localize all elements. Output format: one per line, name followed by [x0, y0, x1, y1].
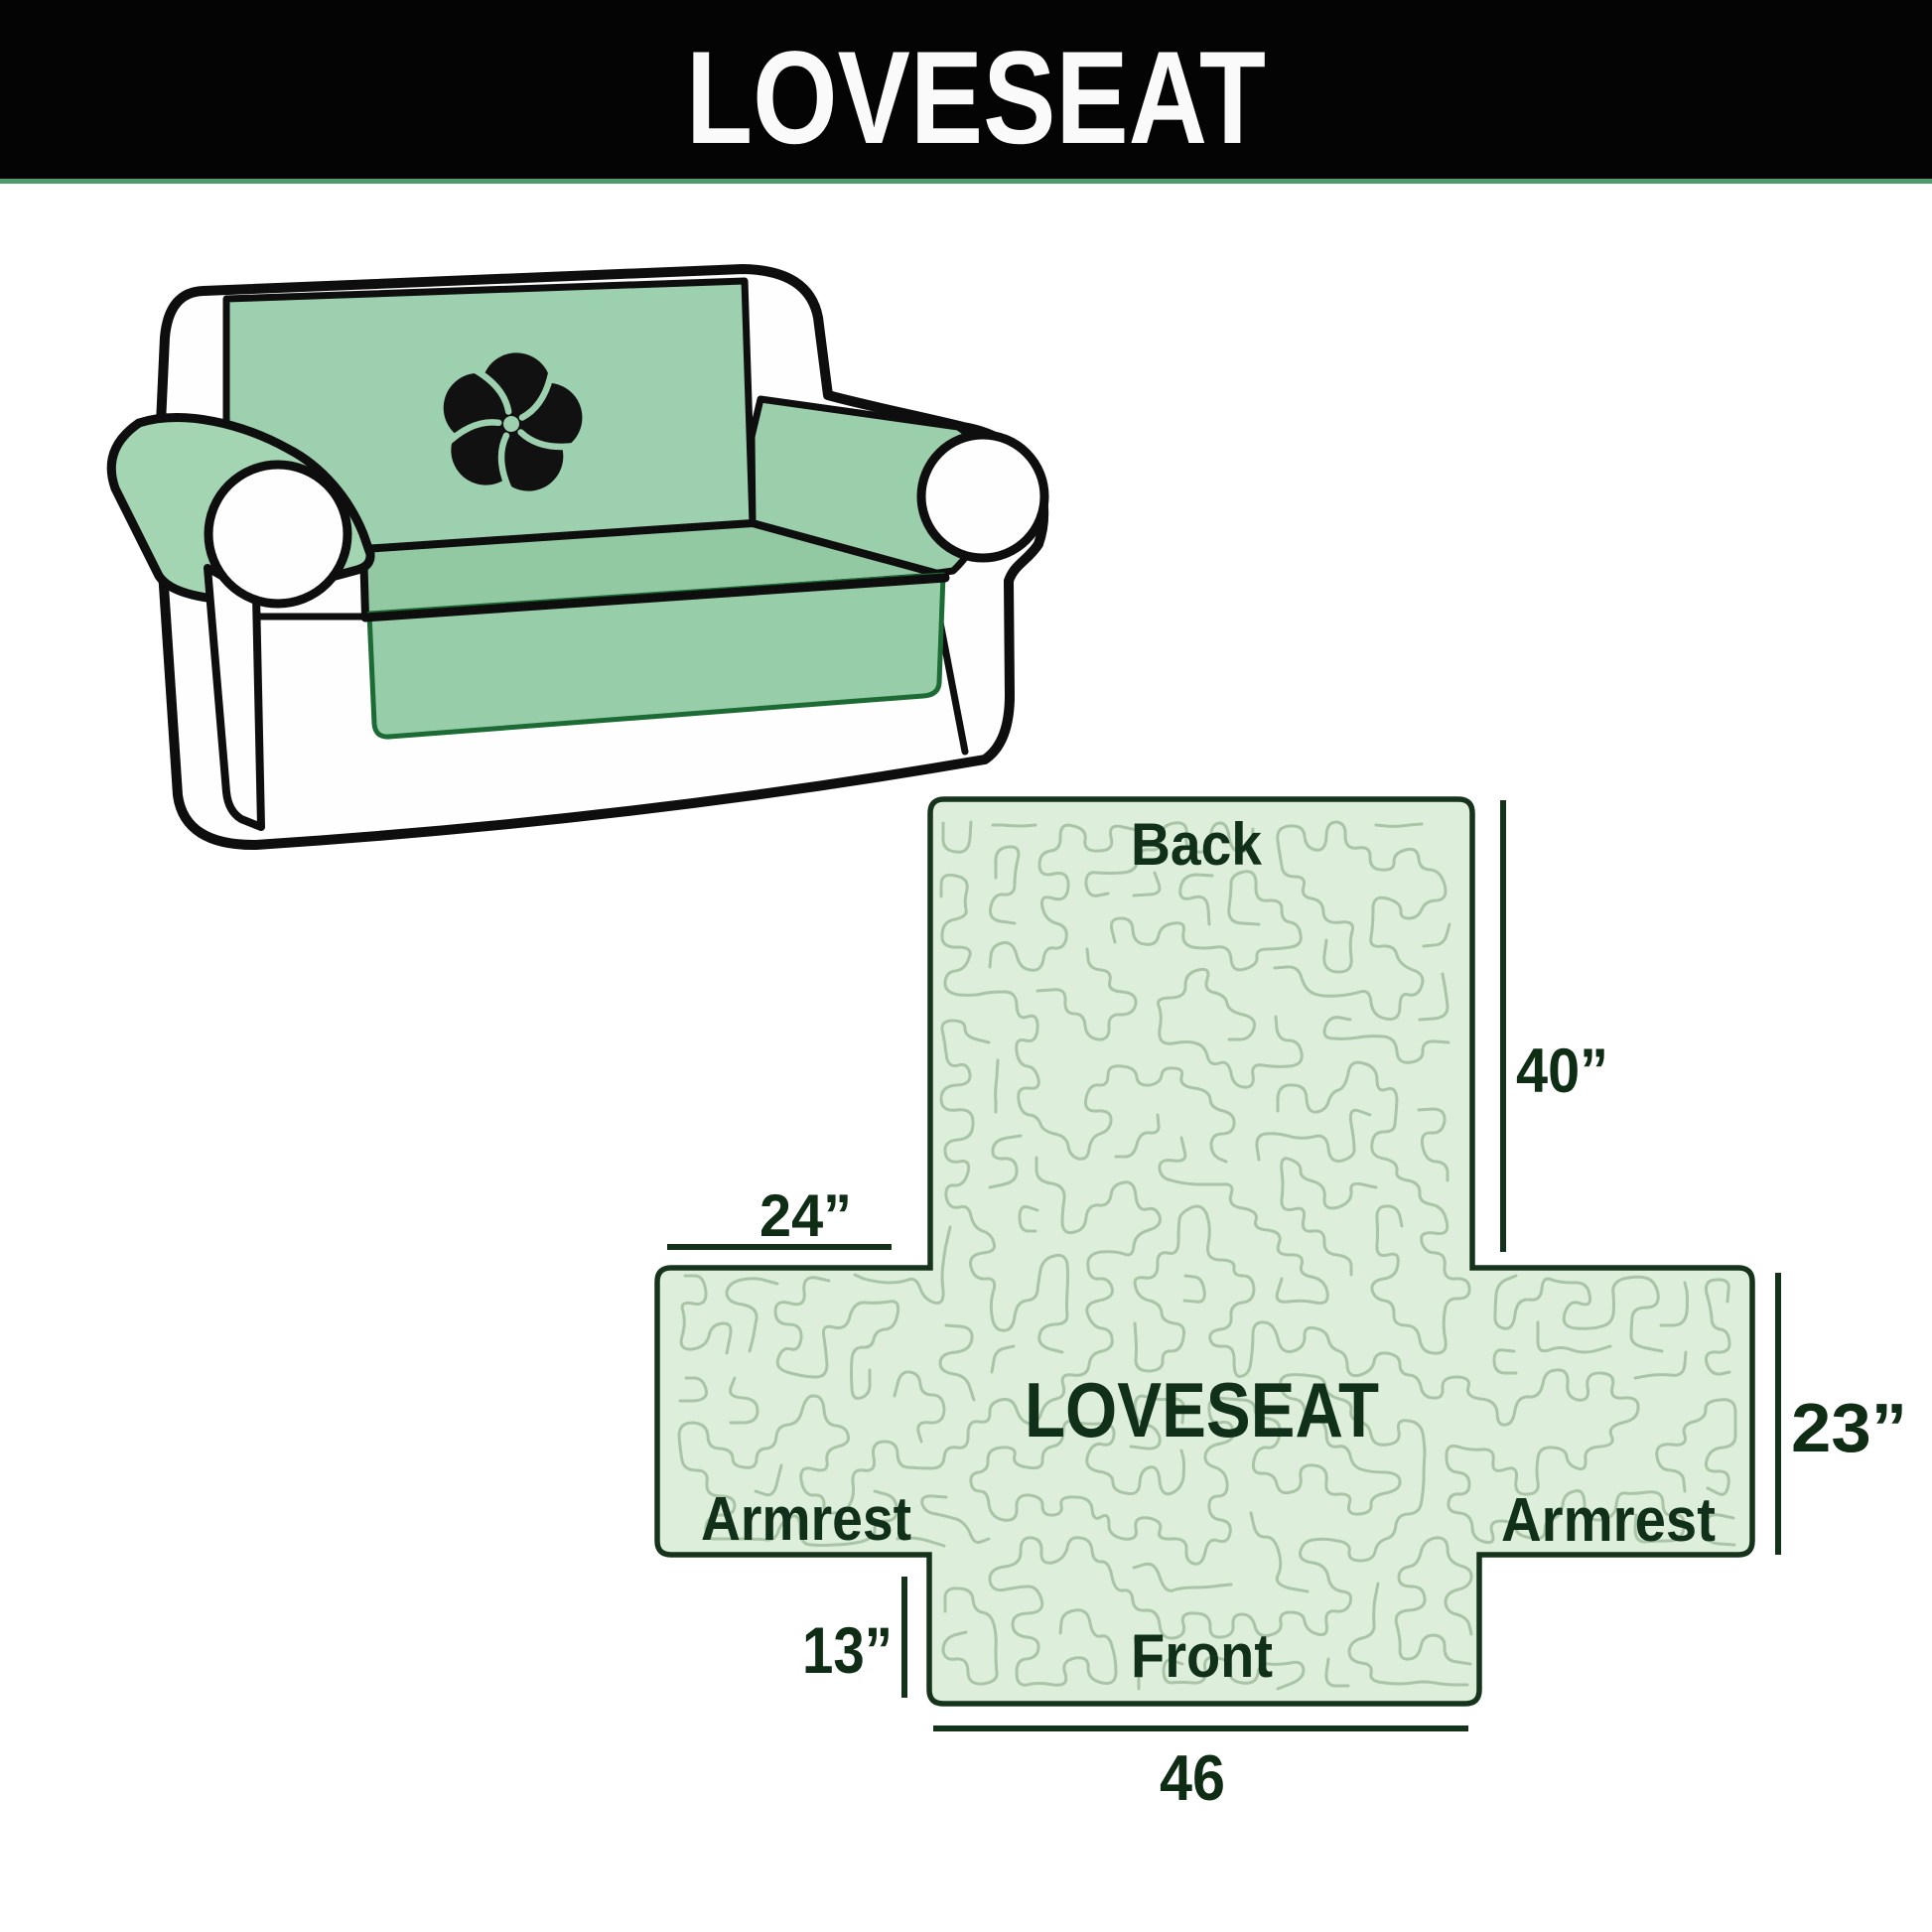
svg-text:13”: 13” [802, 1613, 893, 1687]
svg-text:Armrest: Armrest [1501, 1486, 1716, 1555]
svg-text:23”: 23” [1791, 1389, 1907, 1466]
svg-text:Back: Back [1131, 811, 1263, 878]
svg-text:LOVESEAT: LOVESEAT [1025, 1366, 1379, 1453]
svg-text:46: 46 [1160, 1741, 1225, 1814]
svg-text:LOVESEAT: LOVESEAT [686, 25, 1266, 172]
svg-text:24”: 24” [759, 1182, 852, 1249]
svg-text:40”: 40” [1516, 1036, 1608, 1106]
svg-text:Front: Front [1131, 1622, 1273, 1691]
svg-text:Armrest: Armrest [701, 1485, 911, 1554]
